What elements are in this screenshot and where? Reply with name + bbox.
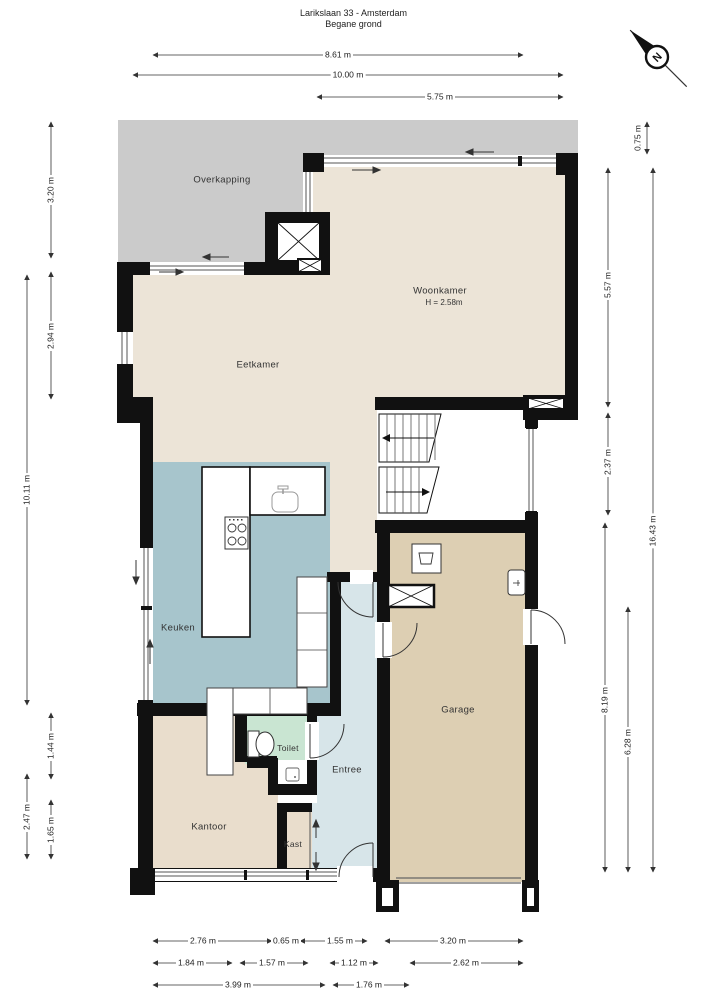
room-label-eetkamer: Eetkamer: [236, 360, 279, 370]
fontein-sink-icon: [286, 768, 299, 781]
dim-bottom3-2: 1.76 m: [354, 980, 384, 989]
floor-plan-drawing: N: [0, 0, 707, 1000]
dim-bottom2-4: 2.62 m: [451, 958, 481, 967]
dim-left-4: 1.44 m: [46, 731, 55, 761]
room-label-kast: Kast: [284, 840, 302, 849]
room-label-woonkamer: Woonkamer: [413, 286, 467, 296]
fireplace-flue: [277, 222, 320, 261]
eetkamer-area: [133, 262, 377, 422]
dim-right-2: 5.57 m: [603, 270, 612, 300]
room-label-kantoor: Kantoor: [191, 822, 226, 832]
dim-right-1: 0.75 m: [633, 123, 642, 153]
sink-icon: [272, 492, 298, 512]
room-height-note: H = 2.58m: [425, 299, 462, 307]
dim-left-1: 3.20 m: [46, 175, 55, 205]
dim-right-4: 8.19 m: [600, 685, 609, 715]
dim-left-6: 1.65 m: [46, 815, 55, 845]
dim-right-5: 6.28 m: [623, 727, 632, 757]
dim-bottom2-2: 1.57 m: [257, 958, 287, 967]
room-label-overkapping: Overkapping: [193, 175, 250, 185]
corner-duct: [528, 398, 564, 409]
dim-bottom2-1: 1.84 m: [176, 958, 206, 967]
dim-left-5: 2.47 m: [22, 802, 31, 832]
window-divider: [518, 156, 522, 166]
dim-bottom2-3: 1.12 m: [339, 958, 369, 967]
kitchen-island: [202, 467, 250, 637]
dim-bottom1-4: 3.20 m: [438, 936, 468, 945]
entree-duct: [388, 585, 434, 607]
wall-unit-icon: [508, 570, 525, 595]
dim-right-6: 16.43 m: [648, 514, 657, 549]
dim-bottom1-1: 2.76 m: [188, 936, 218, 945]
dim-bottom1-2: 0.65 m: [271, 936, 301, 945]
plan-subtitle: Begane grond: [0, 20, 707, 29]
toilet-fixture: [248, 731, 274, 757]
room-label-entree: Entree: [332, 765, 362, 775]
room-label-toilet: Toilet: [277, 744, 299, 753]
floor-plan-page: N Larikslaan 33 - Amsterdam Begane grond…: [0, 0, 707, 1000]
dim-left-2: 2.94 m: [46, 321, 55, 351]
dim-left-3: 10.11 m: [22, 473, 31, 507]
vent-box: [298, 259, 322, 272]
dim-right-3: 2.37 m: [603, 447, 612, 477]
dim-bottom1-3: 1.55 m: [325, 936, 355, 945]
room-label-garage: Garage: [441, 705, 475, 715]
room-label-keuken: Keuken: [161, 623, 195, 633]
plan-title: Larikslaan 33 - Amsterdam: [0, 9, 707, 18]
compass-rose: N: [622, 22, 694, 94]
garage-door: [376, 878, 539, 912]
boiler-icon: [412, 544, 441, 573]
dim-top-3: 5.75 m: [425, 92, 455, 101]
cooktop-icon: [225, 517, 248, 549]
overkapping-area: [118, 120, 578, 155]
dim-bottom3-1: 3.99 m: [223, 980, 253, 989]
dim-top-1: 8.61 m: [323, 50, 353, 59]
dim-top-2: 10.00 m: [331, 70, 366, 79]
